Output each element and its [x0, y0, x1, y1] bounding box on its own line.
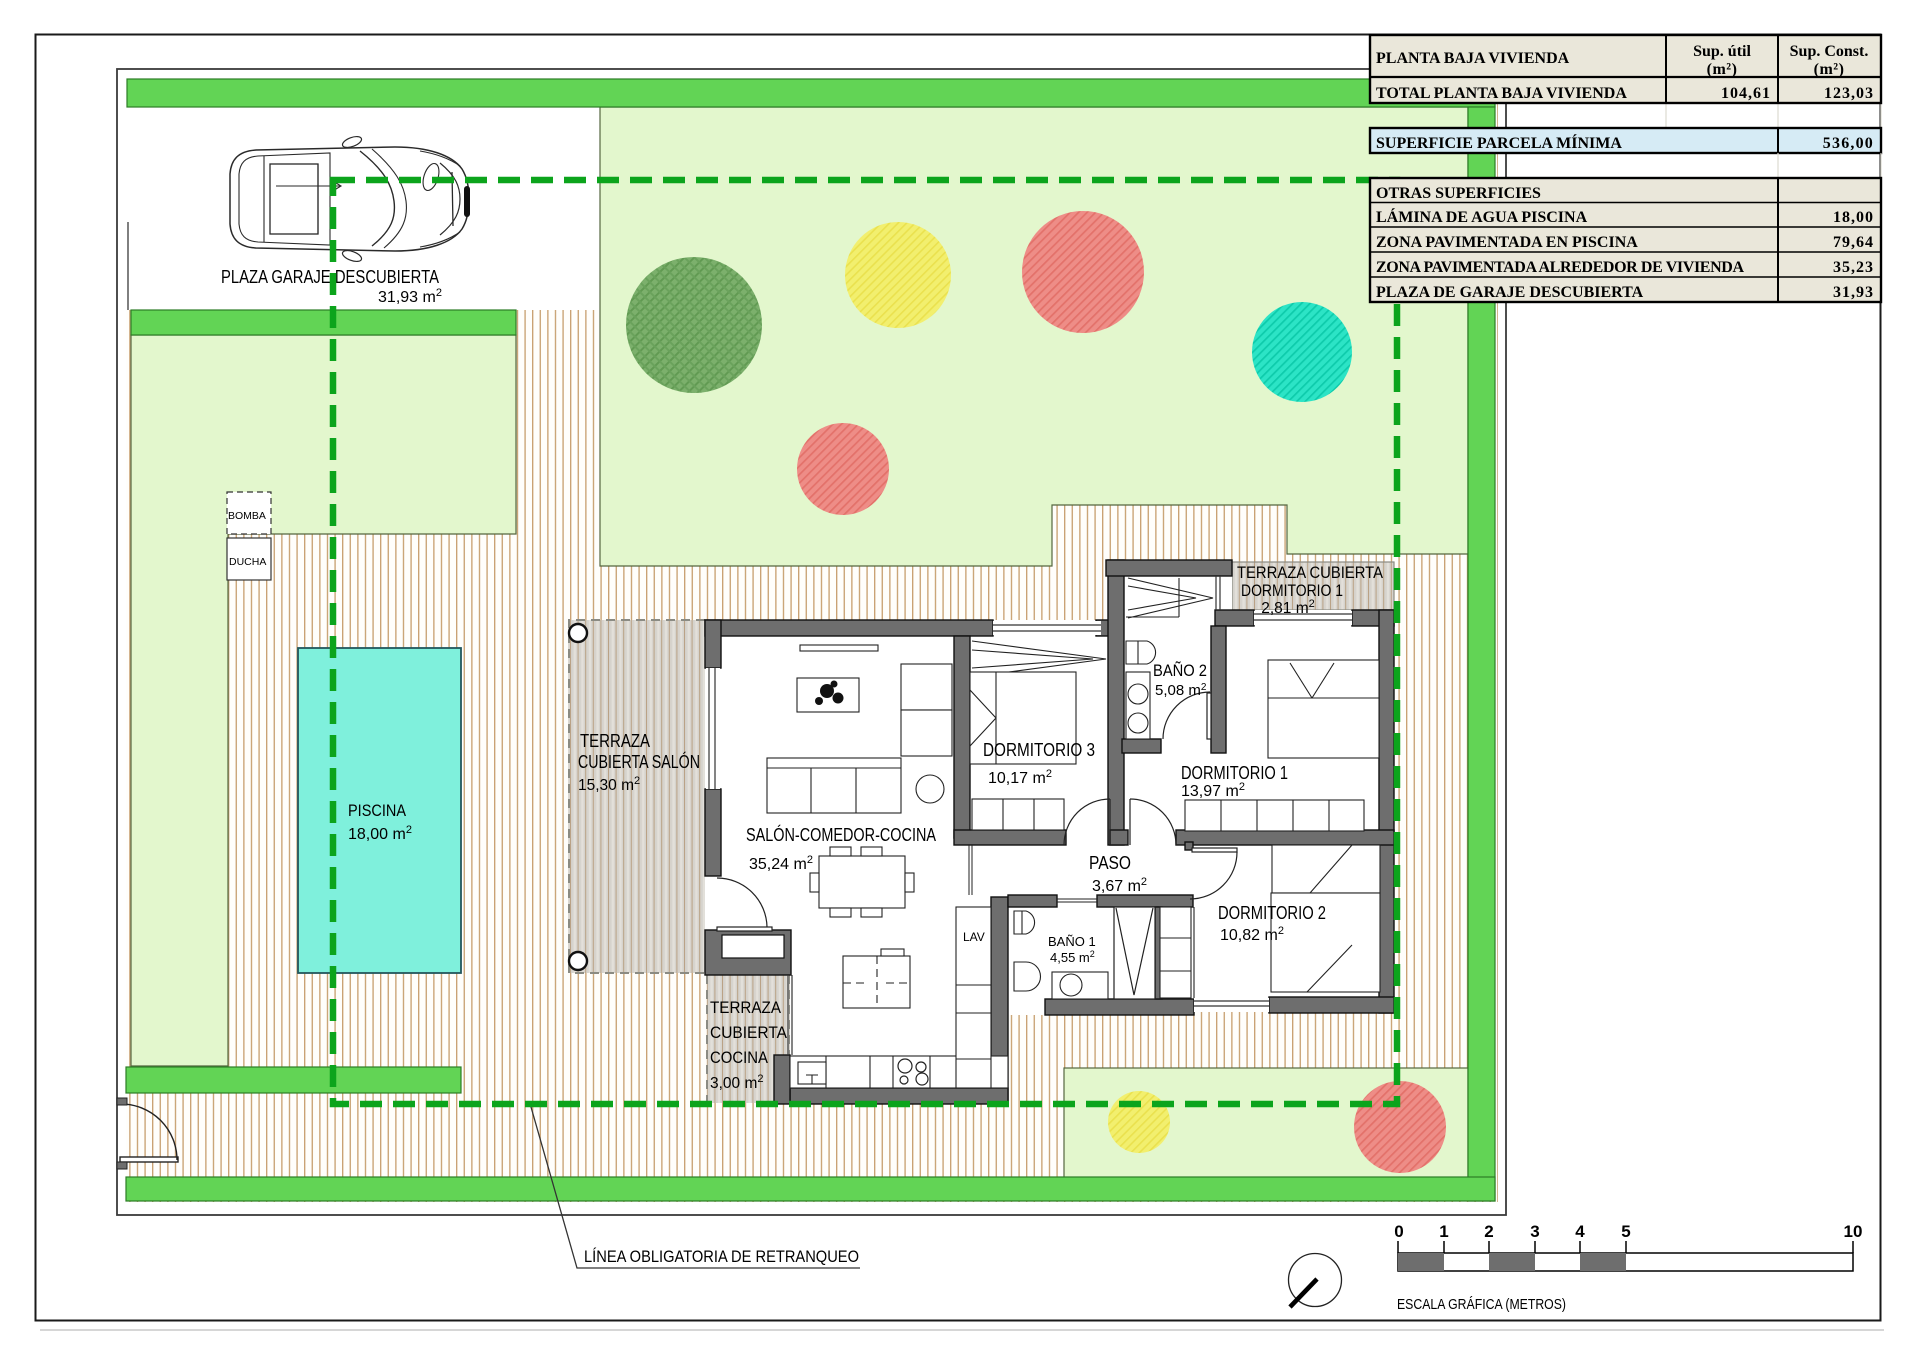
svg-text:TOTAL PLANTA BAJA VIVIENDA: TOTAL PLANTA BAJA VIVIENDA: [1376, 85, 1627, 102]
svg-text:LAV: LAV: [963, 930, 985, 944]
svg-text:35,24 m2: 35,24 m2: [749, 854, 813, 873]
svg-text:35,23: 35,23: [1833, 259, 1874, 276]
svg-text:104,61: 104,61: [1721, 85, 1771, 102]
svg-text:TERRAZA: TERRAZA: [710, 998, 782, 1017]
svg-text:CUBIERTA SALÓN: CUBIERTA SALÓN: [578, 751, 700, 772]
svg-text:18,00: 18,00: [1833, 209, 1874, 226]
svg-text:PASO: PASO: [1089, 853, 1131, 873]
svg-text:5,08 m2: 5,08 m2: [1155, 682, 1207, 699]
svg-text:3: 3: [1530, 1222, 1539, 1241]
svg-text:18,00 m2: 18,00 m2: [348, 824, 412, 843]
svg-text:(m²): (m²): [1814, 61, 1845, 78]
svg-text:31,93: 31,93: [1833, 284, 1874, 301]
svg-text:DORMITORIO 1: DORMITORIO 1: [1181, 763, 1288, 783]
svg-text:4: 4: [1575, 1222, 1585, 1241]
svg-text:4,55 m2: 4,55 m2: [1050, 949, 1095, 965]
svg-text:10,17 m2: 10,17 m2: [988, 768, 1052, 787]
svg-text:31,93 m2: 31,93 m2: [378, 287, 442, 306]
svg-text:PISCINA: PISCINA: [348, 802, 406, 820]
svg-text:SUPERFICIE PARCELA MÍNIMA: SUPERFICIE PARCELA MÍNIMA: [1376, 133, 1622, 152]
svg-text:PLAZA DE GARAJE DESCUBIERTA: PLAZA DE GARAJE DESCUBIERTA: [1376, 284, 1644, 301]
svg-text:0: 0: [1394, 1222, 1403, 1241]
svg-text:BAÑO 2: BAÑO 2: [1153, 660, 1207, 680]
svg-text:DORMITORIO 2: DORMITORIO 2: [1218, 903, 1326, 923]
svg-text:Sup. Const.: Sup. Const.: [1790, 43, 1869, 60]
svg-text:15,30 m2: 15,30 m2: [578, 775, 640, 794]
svg-text:DORMITORIO 3: DORMITORIO 3: [983, 740, 1095, 760]
svg-text:LÍNEA OBLIGATORIA DE RETRANQUE: LÍNEA OBLIGATORIA DE RETRANQUEO: [584, 1247, 859, 1266]
svg-text:DUCHA: DUCHA: [229, 556, 266, 568]
svg-text:CUBIERTA: CUBIERTA: [710, 1023, 788, 1042]
svg-text:536,00: 536,00: [1823, 135, 1874, 152]
svg-text:ESCALA GRÁFICA (METROS): ESCALA GRÁFICA (METROS): [1397, 1296, 1566, 1313]
svg-text:LÁMINA DE AGUA PISCINA: LÁMINA DE AGUA PISCINA: [1376, 207, 1588, 226]
svg-text:2,81 m2: 2,81 m2: [1261, 598, 1315, 617]
svg-text:3,00 m2: 3,00 m2: [710, 1073, 764, 1092]
svg-text:2: 2: [1484, 1222, 1493, 1241]
svg-text:10,82 m2: 10,82 m2: [1220, 925, 1284, 944]
svg-text:Sup. útil: Sup. útil: [1693, 43, 1751, 60]
svg-text:10: 10: [1844, 1222, 1863, 1241]
svg-text:TERRAZA: TERRAZA: [580, 731, 650, 751]
svg-text:BOMBA: BOMBA: [228, 510, 266, 522]
svg-text:5: 5: [1621, 1222, 1630, 1241]
svg-text:1: 1: [1439, 1222, 1448, 1241]
svg-text:BAÑO 1: BAÑO 1: [1048, 934, 1096, 949]
svg-text:SALÓN-COMEDOR-COCINA: SALÓN-COMEDOR-COCINA: [746, 824, 936, 845]
svg-text:123,03: 123,03: [1824, 85, 1874, 102]
svg-text:ZONA PAVIMENTADA EN PISCINA: ZONA PAVIMENTADA EN PISCINA: [1376, 234, 1638, 251]
svg-text:ZONA PAVIMENTADA ALREDEDOR DE: ZONA PAVIMENTADA ALREDEDOR DE VIVIENDA: [1376, 259, 1744, 276]
svg-text:PLANTA BAJA VIVIENDA: PLANTA BAJA VIVIENDA: [1376, 50, 1570, 67]
svg-text:TERRAZA CUBIERTA: TERRAZA CUBIERTA: [1237, 563, 1384, 582]
svg-text:3,67 m2: 3,67 m2: [1092, 876, 1147, 895]
svg-text:DORMITORIO 1: DORMITORIO 1: [1241, 581, 1343, 600]
svg-text:13,97 m2: 13,97 m2: [1181, 781, 1245, 800]
svg-text:COCINA: COCINA: [710, 1048, 769, 1067]
svg-text:(m²): (m²): [1707, 61, 1738, 78]
svg-text:79,64: 79,64: [1833, 234, 1874, 251]
svg-text:OTRAS SUPERFICIES: OTRAS SUPERFICIES: [1376, 185, 1541, 202]
